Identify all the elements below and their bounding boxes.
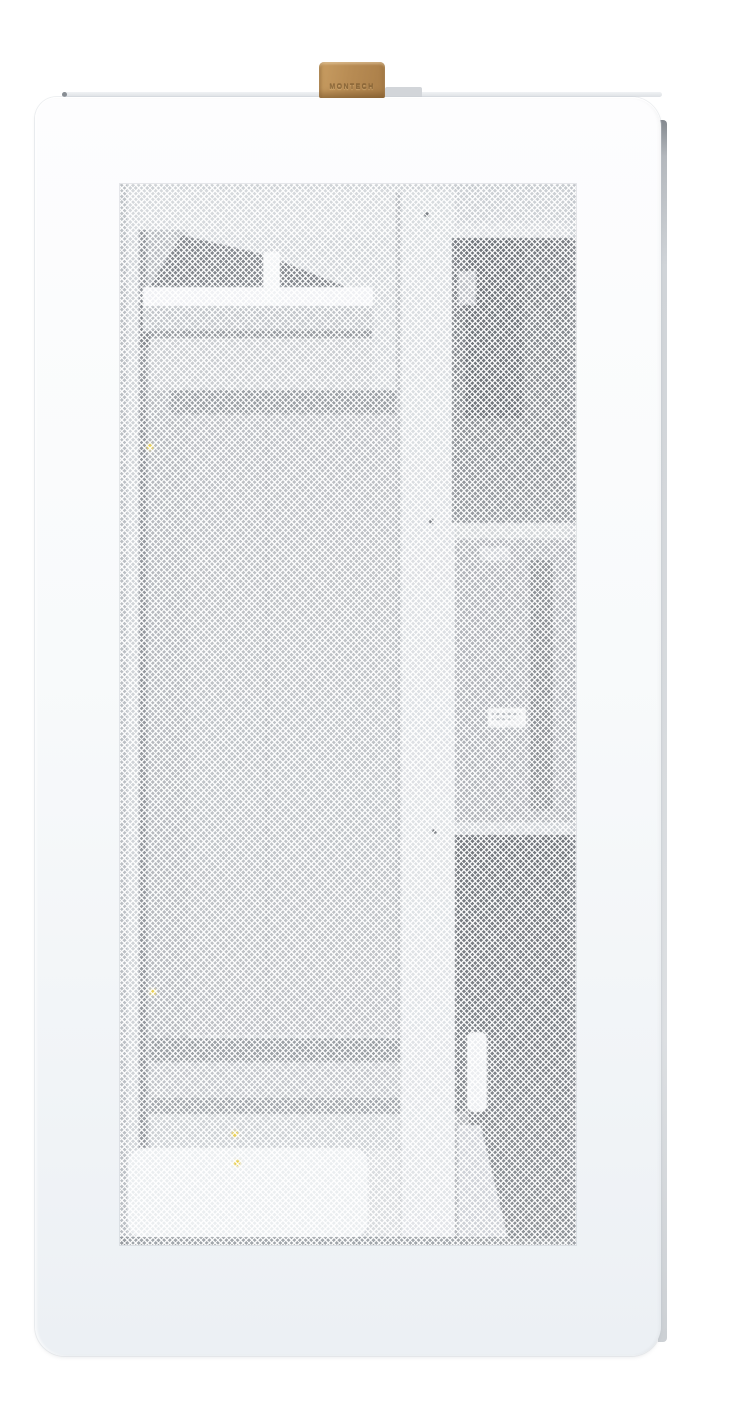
product-photo-pc-case: MONTECH	[0, 0, 731, 1417]
yellow-cable-clip	[232, 1131, 238, 1137]
interior-left-frame-line	[139, 230, 147, 1238]
brand-embossed-text: MONTECH	[329, 84, 374, 91]
psu-shroud-white-box	[128, 1148, 368, 1238]
dark-seam-line	[150, 330, 372, 338]
gray-band-upper	[143, 306, 373, 332]
light-channel	[401, 192, 455, 1237]
psu-shroud-extension	[368, 1150, 400, 1236]
mid-bay-light-patch	[480, 547, 510, 561]
leather-strap-handle: MONTECH	[319, 62, 385, 98]
mesh-side-panel	[120, 184, 576, 1245]
top-panel-edge-tab	[385, 87, 422, 97]
light-band	[150, 338, 372, 390]
label-text-line	[492, 713, 520, 715]
rivet-screw	[432, 829, 437, 834]
mid-bay-section	[455, 539, 576, 822]
mid-bay-dark-strip	[530, 560, 553, 810]
mesh-edge-shade-bottom	[120, 1237, 576, 1245]
bottom-mid-band	[150, 1062, 400, 1098]
right-bay-mid-seam	[455, 523, 576, 539]
bottom-light-band	[150, 1114, 400, 1148]
upper-drive-cage-dark-core	[465, 238, 523, 418]
case-side-panel	[35, 97, 661, 1356]
motherboard-tray-back	[188, 414, 398, 1035]
yellow-cable-clip	[150, 989, 156, 995]
white-bracket	[263, 252, 280, 306]
white-bracket-slot	[467, 1032, 487, 1112]
yellow-cable-clip	[147, 444, 153, 450]
tray-seam	[266, 414, 268, 1035]
yellow-cable-clip	[234, 1160, 240, 1166]
bottom-dark-line	[150, 1098, 400, 1114]
dark-rail	[170, 390, 396, 414]
mesh-edge-shade-top	[120, 184, 576, 190]
rivet-screw	[424, 212, 429, 217]
white-crossbar	[143, 287, 373, 306]
rivet-screw	[429, 519, 434, 524]
bottom-dark-rail	[150, 1038, 400, 1062]
right-bay-top-seam	[455, 223, 576, 237]
mesh-edge-shade-left	[120, 184, 127, 1245]
mesh-edge-shade-right	[569, 184, 576, 1245]
upper-cage-light-clip	[458, 271, 476, 305]
case-interior-behind-mesh	[120, 184, 576, 1245]
label-text-line	[492, 718, 514, 720]
